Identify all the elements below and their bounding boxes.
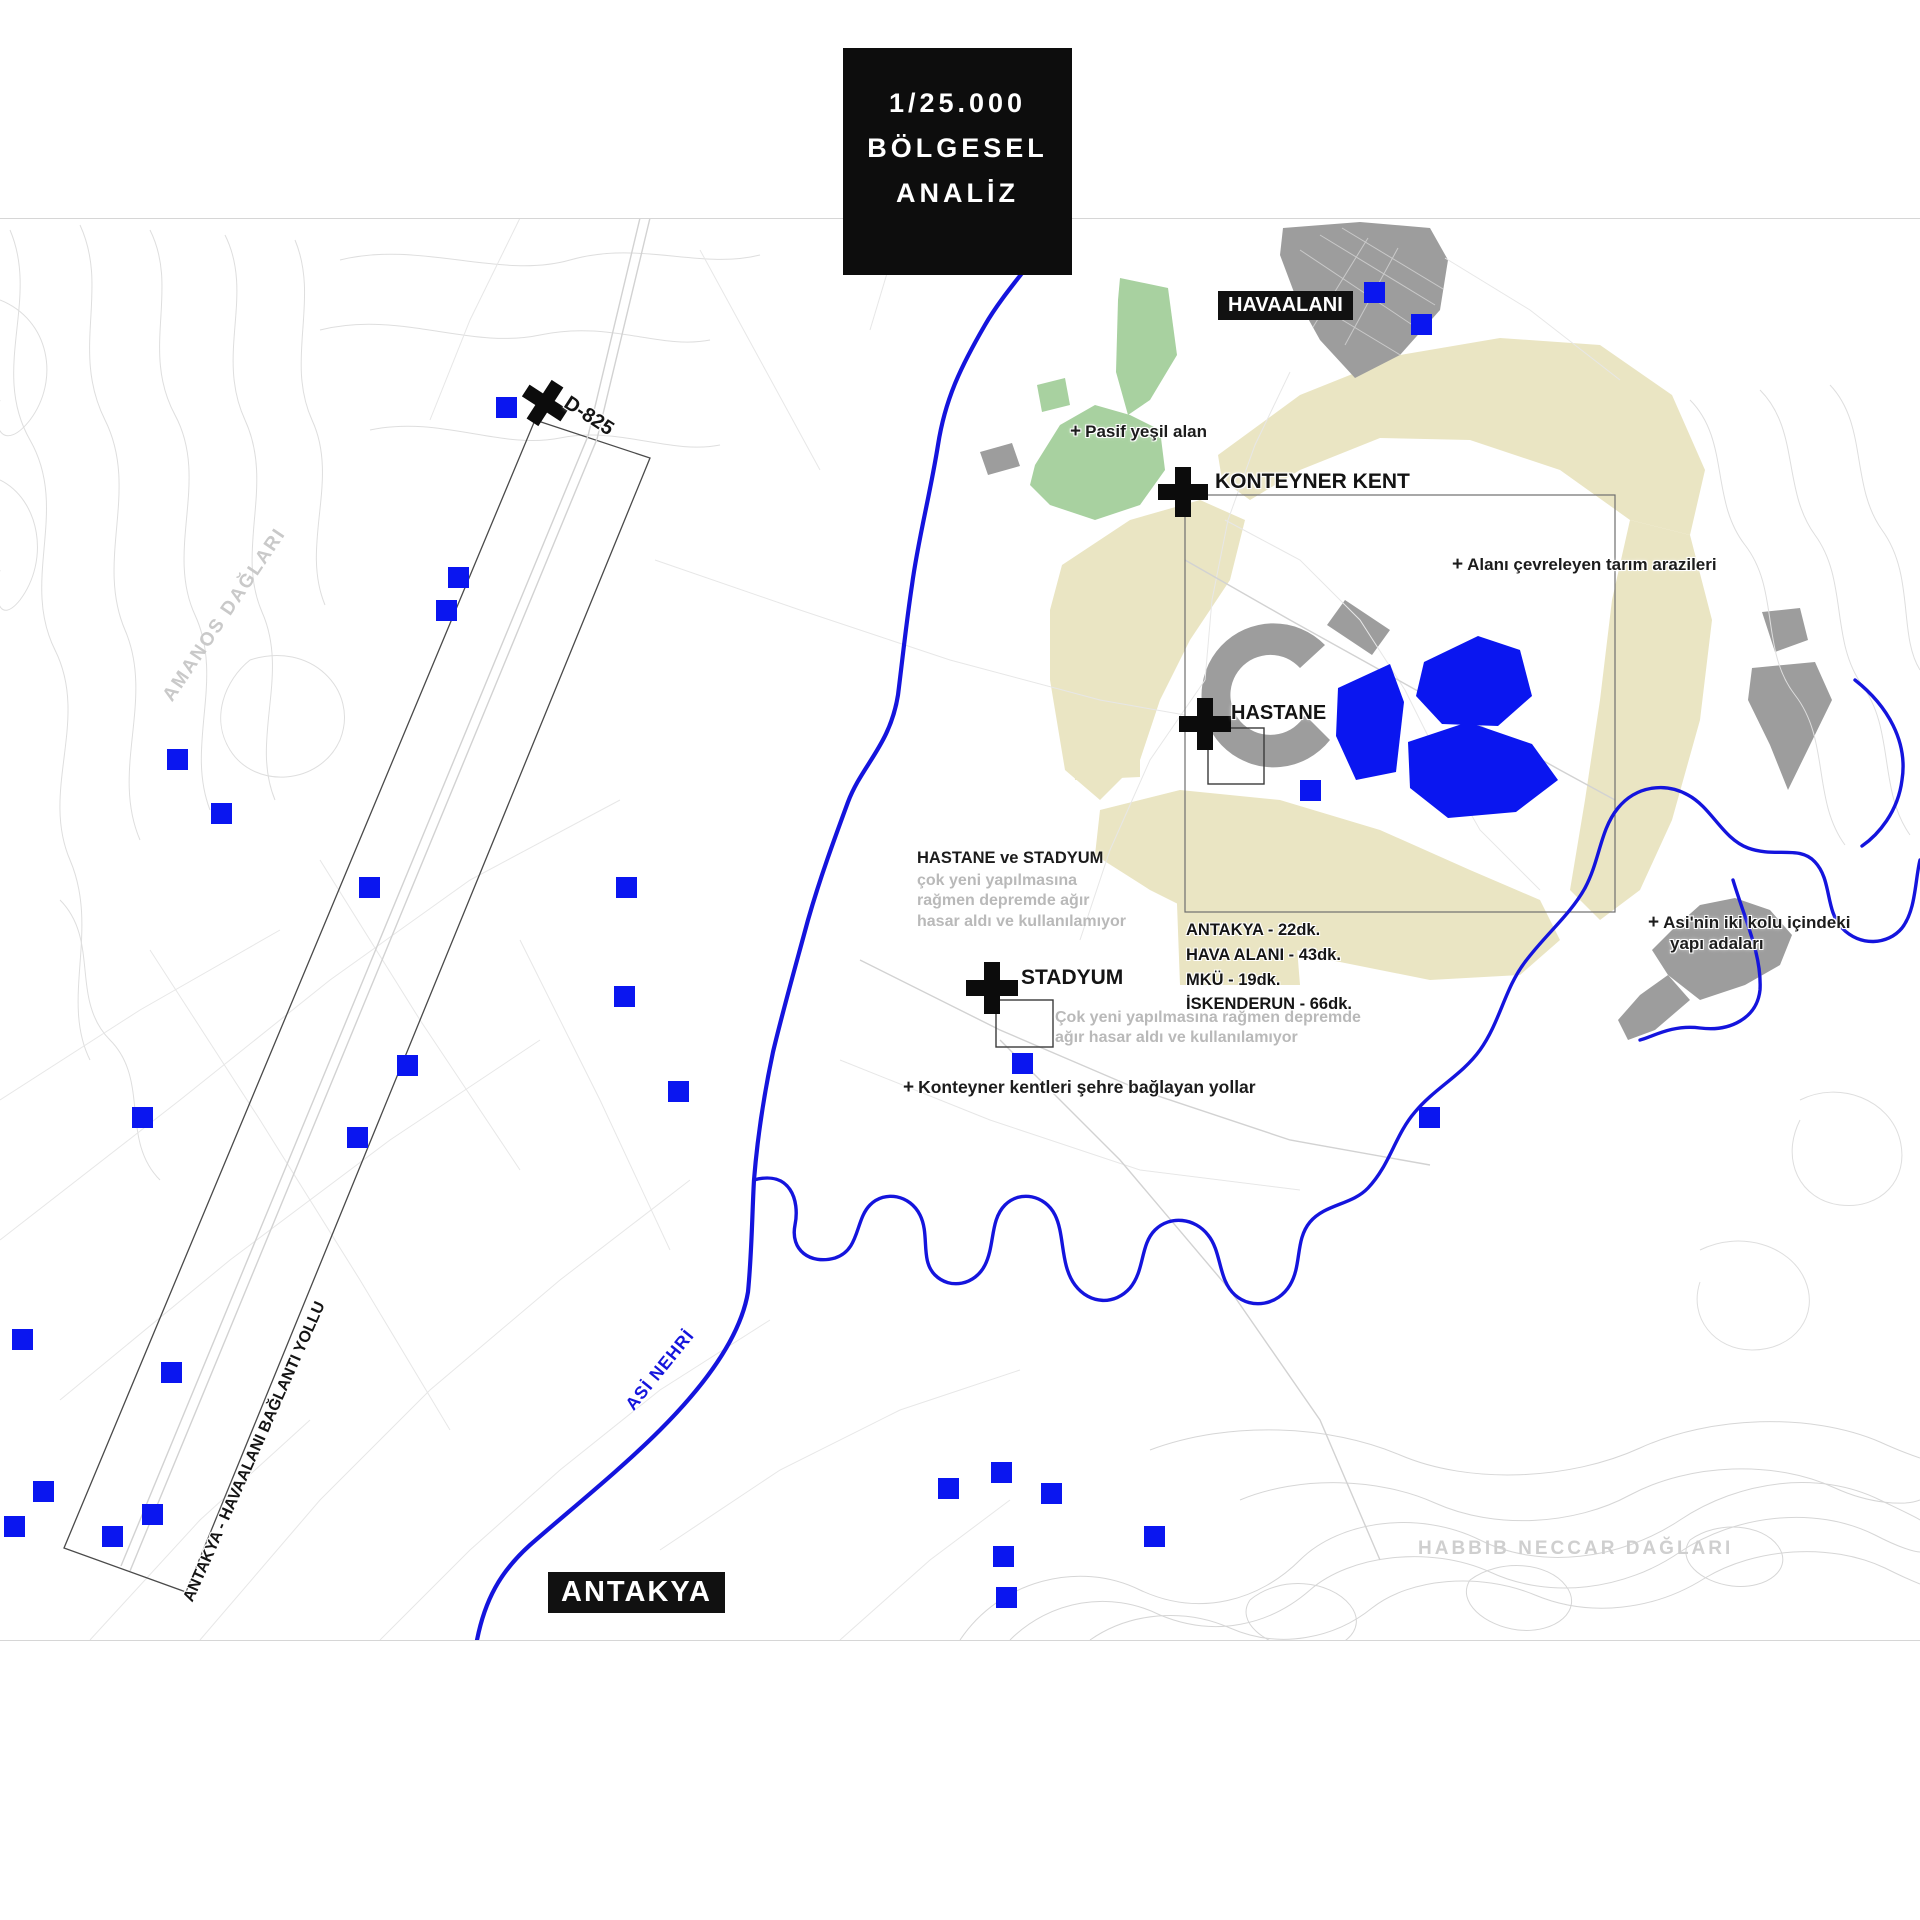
regional-analysis-map: 1/25.000 BÖLGESEL ANALİZ HAVAALANI ANTAK… <box>0 0 1920 1920</box>
konteyner-yollar-text: Konteyner kentleri şehre bağlayan yollar <box>918 1077 1256 1097</box>
travel-time-havaalani: HAVA ALANI - 43dk. <box>1186 943 1352 968</box>
antakya-label: ANTAKYA <box>548 1572 725 1613</box>
container-city-marker <box>359 877 380 898</box>
connection-road-corridor <box>64 218 650 1592</box>
pasif-yesil-text: Pasif yeşil alan <box>1085 422 1207 441</box>
container-city-marker <box>996 1587 1017 1608</box>
container-city-marker <box>1364 282 1385 303</box>
plus-icon: + <box>903 1077 914 1098</box>
plus-icon: + <box>1070 421 1081 442</box>
hastane-label: HASTANE <box>1231 702 1326 725</box>
habbib-neccar-daglari-label: HABBIB NECCAR DAĞLARI <box>1418 1538 1733 1560</box>
stadyum-label: STADYUM <box>1021 966 1123 990</box>
container-city-marker <box>614 986 635 1007</box>
title-box: 1/25.000 BÖLGESEL ANALİZ <box>843 48 1072 275</box>
pasif-yesil-annotation: +Pasif yeşil alan <box>1070 421 1207 443</box>
hastane-stadyum-note-block: HASTANE ve STADYUM çok yeni yapılmasına … <box>917 849 1147 932</box>
container-city-marker <box>1144 1526 1165 1547</box>
container-city-marker <box>436 600 457 621</box>
stadyum-damage-note: Çok yeni yapılmasına rağmen depremde ağı… <box>1055 1008 1365 1049</box>
title-line2: BÖLGESEL <box>843 126 1072 171</box>
container-city-marker <box>1411 314 1432 335</box>
title-line3: ANALİZ <box>843 171 1072 216</box>
container-city-marker <box>161 1362 182 1383</box>
container-city-marker <box>991 1462 1012 1483</box>
container-city-marker <box>496 397 517 418</box>
asi-line2: yapı adaları <box>1670 934 1850 954</box>
container-city-marker <box>4 1516 25 1537</box>
container-city-marker <box>1300 780 1321 801</box>
havaalani-label: HAVAALANI <box>1218 291 1353 320</box>
container-city-marker <box>167 749 188 770</box>
hastane-stadyum-note-text: çok yeni yapılmasına rağmen depremde ağı… <box>917 871 1135 932</box>
container-city-marker <box>448 567 469 588</box>
stadyum-cross <box>966 962 1018 1014</box>
contour-lines-bottom-right <box>960 1422 1920 1651</box>
tarim-text: Alanı çevreleyen tarım arazileri <box>1467 555 1716 574</box>
container-city-marker <box>132 1107 153 1128</box>
map-canvas <box>0 0 1920 1920</box>
container-city-marker <box>397 1055 418 1076</box>
asi-line1: Asi'nin iki kolu içindeki <box>1663 913 1850 932</box>
container-city-marker <box>1041 1483 1062 1504</box>
green-areas <box>1030 278 1177 520</box>
tarim-annotation: +Alanı çevreleyen tarım arazileri <box>1452 554 1717 576</box>
title-scale: 1/25.000 <box>843 81 1072 126</box>
container-city-marker <box>1419 1107 1440 1128</box>
container-city-marker <box>993 1546 1014 1567</box>
travel-times-block: ANTAKYA - 22dk. HAVA ALANI - 43dk. MKÜ -… <box>1186 918 1352 1017</box>
container-city-marker <box>616 877 637 898</box>
hastane-stadyum-note-title: HASTANE ve STADYUM <box>917 849 1147 868</box>
hospital-complex-shape <box>1202 623 1330 767</box>
container-city-marker <box>668 1081 689 1102</box>
plus-icon: + <box>1648 912 1659 933</box>
konteyner-kent-label: KONTEYNER KENT <box>1215 470 1410 494</box>
travel-time-antakya: ANTAKYA - 22dk. <box>1186 918 1352 943</box>
container-city-marker <box>12 1329 33 1350</box>
container-city-marker <box>211 803 232 824</box>
map-bottom-edge <box>0 1640 1920 1641</box>
plus-icon: + <box>1452 554 1463 575</box>
container-city-marker <box>347 1127 368 1148</box>
contour-lines-right <box>1690 385 1920 1350</box>
travel-time-mku: MKÜ - 19dk. <box>1186 968 1352 993</box>
container-city-marker <box>1012 1053 1033 1074</box>
asi-yapi-adalari-annotation: +Asi'nin iki kolu içindeki yapı adaları <box>1648 912 1850 954</box>
container-city-marker <box>33 1481 54 1502</box>
contour-lines-left <box>0 225 760 1180</box>
container-city-marker <box>102 1526 123 1547</box>
konteyner-yollar-annotation: +Konteyner kentleri şehre bağlayan yolla… <box>903 1077 1256 1099</box>
container-city-marker <box>142 1504 163 1525</box>
container-city-marker <box>938 1478 959 1499</box>
